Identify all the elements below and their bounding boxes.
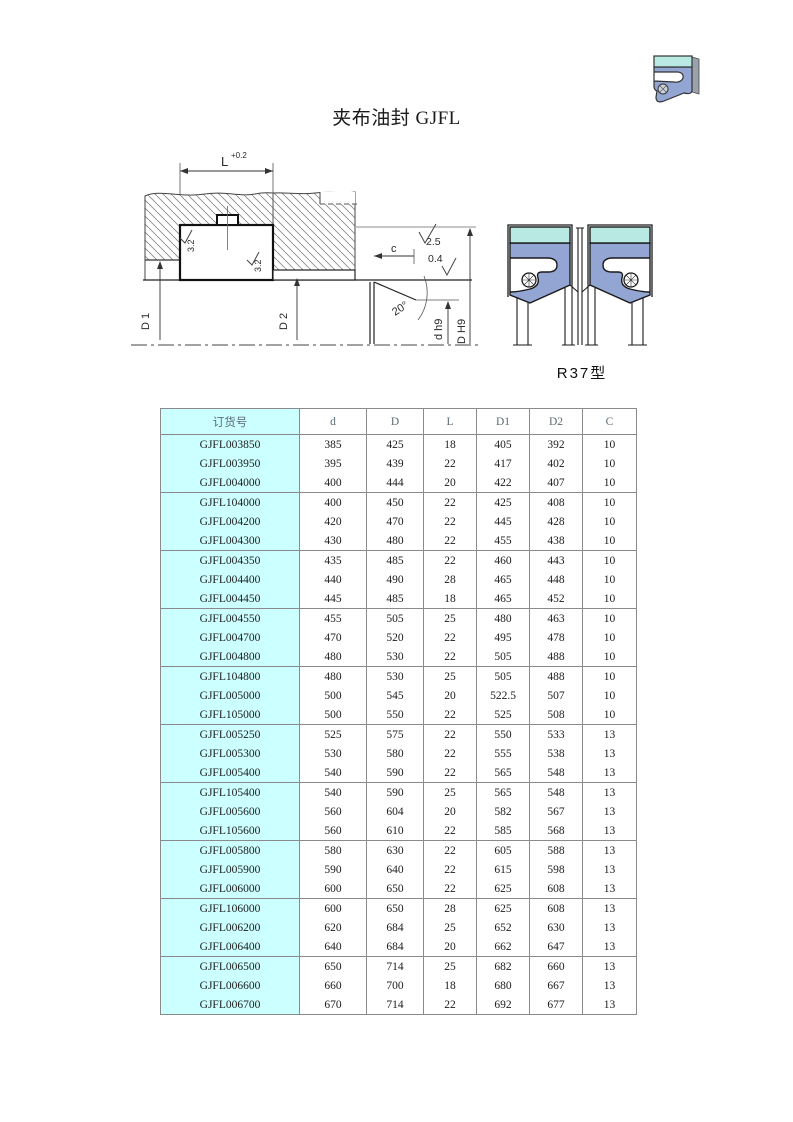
dimension-cell: 28 — [424, 899, 477, 919]
order-number-cell: GJFL004700 — [161, 628, 300, 647]
dimension-cell: 460 — [477, 551, 530, 571]
dimension-cell: 430 — [300, 531, 367, 551]
dimension-cell: 714 — [367, 957, 424, 977]
order-number-cell: GJFL004300 — [161, 531, 300, 551]
table-body: GJFL0038503854251840539210GJFL0039503954… — [161, 435, 637, 1015]
dimension-cell: 22 — [424, 705, 477, 725]
dimension-cell: 22 — [424, 763, 477, 783]
table-row: GJFL1054005405902556554813 — [161, 783, 637, 803]
table-row: GJFL0044504454851846545210 — [161, 589, 637, 609]
roughness-shaft: 0.4 — [428, 253, 443, 265]
order-number-cell: GJFL006500 — [161, 957, 300, 977]
dimension-cell: 438 — [530, 531, 583, 551]
table-row: GJFL0048004805302250548810 — [161, 647, 637, 667]
dimension-cell: 13 — [583, 744, 637, 763]
dimension-cell: 22 — [424, 551, 477, 571]
dimension-cell: 25 — [424, 609, 477, 629]
table-row: GJFL0047004705202249547810 — [161, 628, 637, 647]
dimension-cell: 530 — [367, 667, 424, 687]
table-header-row: 订货号dDLD1D2C — [161, 409, 637, 435]
dimension-cell: 682 — [477, 957, 530, 977]
dimension-cell: 18 — [424, 589, 477, 609]
dimension-cell: 488 — [530, 667, 583, 687]
dimension-cell: 10 — [583, 705, 637, 725]
table-row: GJFL0038503854251840539210 — [161, 435, 637, 455]
dimension-cell: 13 — [583, 879, 637, 899]
dimension-cell: 640 — [367, 860, 424, 879]
dimension-cell: 10 — [583, 686, 637, 705]
dimension-cell: 662 — [477, 937, 530, 957]
order-number-cell: GJFL005900 — [161, 860, 300, 879]
dimension-cell: 608 — [530, 879, 583, 899]
table-row: GJFL0044004404902846544810 — [161, 570, 637, 589]
dimension-cell: 590 — [300, 860, 367, 879]
dimension-cell: 590 — [367, 763, 424, 783]
order-number-cell: GJFL104000 — [161, 493, 300, 513]
dimension-cell: 455 — [300, 609, 367, 629]
table-row: GJFL1060006006502862560813 — [161, 899, 637, 919]
order-number-cell: GJFL006200 — [161, 918, 300, 937]
dimension-cell: 22 — [424, 454, 477, 473]
dimension-cell: 22 — [424, 647, 477, 667]
dimension-cell: 485 — [367, 551, 424, 571]
dimension-cell: 13 — [583, 763, 637, 783]
dimension-cell: 22 — [424, 531, 477, 551]
table-row: GJFL0060006006502262560813 — [161, 879, 637, 899]
dimension-cell: 560 — [300, 821, 367, 841]
dimension-cell: 650 — [300, 957, 367, 977]
dimension-cell: 440 — [300, 570, 367, 589]
order-number-cell: GJFL104800 — [161, 667, 300, 687]
dimension-cell: 10 — [583, 493, 637, 513]
roughness-bore: 2.5 — [426, 236, 441, 248]
column-header-c: C — [583, 409, 637, 435]
dimension-cell: 10 — [583, 570, 637, 589]
dimension-cell: 450 — [367, 493, 424, 513]
dim-L-tolerance: +0.2 — [231, 151, 247, 160]
dimension-cell: 660 — [530, 957, 583, 977]
dimension-cell: 505 — [367, 609, 424, 629]
dimension-cell: 10 — [583, 667, 637, 687]
dimension-cell: 22 — [424, 628, 477, 647]
dimension-cell: 20 — [424, 937, 477, 957]
dimension-cell: 495 — [477, 628, 530, 647]
order-number-cell: GJFL105400 — [161, 783, 300, 803]
table-row: GJFL0058005806302260558813 — [161, 841, 637, 861]
dimension-cell: 18 — [424, 435, 477, 455]
dimension-cell: 400 — [300, 493, 367, 513]
column-header-l: L — [424, 409, 477, 435]
order-number-cell: GJFL006000 — [161, 879, 300, 899]
dimension-cell: 588 — [530, 841, 583, 861]
dimension-cell: 610 — [367, 821, 424, 841]
dim-c-label: c — [391, 243, 397, 255]
dimension-cell: 660 — [300, 976, 367, 995]
dimension-cell: 20 — [424, 473, 477, 493]
dim-shaft-label: d h9 — [433, 319, 445, 340]
order-number-cell: GJFL105600 — [161, 821, 300, 841]
dimension-cell: 567 — [530, 802, 583, 821]
dimension-cell: 10 — [583, 435, 637, 455]
order-number-cell: GJFL003850 — [161, 435, 300, 455]
dimension-cell: 407 — [530, 473, 583, 493]
order-number-cell: GJFL004400 — [161, 570, 300, 589]
dimension-cell: 13 — [583, 841, 637, 861]
dimension-cell: 470 — [300, 628, 367, 647]
dimension-cell: 480 — [367, 531, 424, 551]
dimension-cell: 445 — [477, 512, 530, 531]
dimension-cell: 692 — [477, 995, 530, 1015]
dimension-cell: 540 — [300, 783, 367, 803]
dimension-cell: 500 — [300, 686, 367, 705]
dimension-cell: 22 — [424, 860, 477, 879]
dimension-cell: 565 — [477, 763, 530, 783]
table-row: GJFL0065006507142568266013 — [161, 957, 637, 977]
dimension-cell: 488 — [530, 647, 583, 667]
table-row: GJFL0052505255752255053313 — [161, 725, 637, 745]
dimension-cell: 533 — [530, 725, 583, 745]
table-row: GJFL0039503954392241740210 — [161, 454, 637, 473]
column-header-d2: D2 — [530, 409, 583, 435]
r37-profile-diagram: R37型 — [502, 212, 658, 384]
dimension-cell: 600 — [300, 899, 367, 919]
page-title: 夹布油封 GJFL — [0, 103, 793, 130]
dimension-cell: 10 — [583, 454, 637, 473]
dimension-cell: 508 — [530, 705, 583, 725]
dimension-cell: 13 — [583, 918, 637, 937]
order-number-cell: GJFL004350 — [161, 551, 300, 571]
dimension-cell: 25 — [424, 918, 477, 937]
dimension-cell: 480 — [477, 609, 530, 629]
dimension-cell: 522.5 — [477, 686, 530, 705]
dimension-cell: 439 — [367, 454, 424, 473]
order-number-cell: GJFL005800 — [161, 841, 300, 861]
dimension-cell: 550 — [477, 725, 530, 745]
dimension-cell: 605 — [477, 841, 530, 861]
dimension-cell: 480 — [300, 667, 367, 687]
dimension-cell: 18 — [424, 976, 477, 995]
dimension-cell: 22 — [424, 744, 477, 763]
order-number-cell: GJFL006700 — [161, 995, 300, 1015]
dimension-cell: 463 — [530, 609, 583, 629]
dimension-cell: 435 — [300, 551, 367, 571]
dimension-cell: 465 — [477, 589, 530, 609]
dimension-cell: 25 — [424, 667, 477, 687]
dimension-cell: 530 — [367, 647, 424, 667]
dim-bore-label: D H9 — [456, 319, 468, 344]
dimension-cell: 545 — [367, 686, 424, 705]
dimension-cell: 568 — [530, 821, 583, 841]
dimension-cell: 10 — [583, 589, 637, 609]
dimension-cell: 445 — [300, 589, 367, 609]
dimension-cell: 10 — [583, 473, 637, 493]
dimension-cell: 22 — [424, 841, 477, 861]
dimension-cell: 485 — [367, 589, 424, 609]
dimension-cell: 507 — [530, 686, 583, 705]
dimension-cell: 402 — [530, 454, 583, 473]
dimension-cell: 700 — [367, 976, 424, 995]
dimension-cell: 625 — [477, 899, 530, 919]
dimension-cell: 10 — [583, 628, 637, 647]
dimension-cell: 392 — [530, 435, 583, 455]
order-number-cell: GJFL005300 — [161, 744, 300, 763]
dimension-cell: 555 — [477, 744, 530, 763]
dimension-cell: 22 — [424, 879, 477, 899]
angle-label: 20° — [390, 299, 410, 318]
dimension-cell: 585 — [477, 821, 530, 841]
dimension-cell: 650 — [367, 879, 424, 899]
column-header-d: d — [300, 409, 367, 435]
order-number-cell: GJFL105000 — [161, 705, 300, 725]
dimension-cell: 580 — [367, 744, 424, 763]
dimension-cell: 652 — [477, 918, 530, 937]
dimension-cell: 20 — [424, 686, 477, 705]
dimension-cell: 470 — [367, 512, 424, 531]
dimension-cell: 505 — [477, 647, 530, 667]
dimension-cell: 540 — [300, 763, 367, 783]
order-number-cell: GJFL006400 — [161, 937, 300, 957]
order-number-cell: GJFL004200 — [161, 512, 300, 531]
dimension-cell: 25 — [424, 957, 477, 977]
dimension-cell: 22 — [424, 821, 477, 841]
dimension-cell: 448 — [530, 570, 583, 589]
column-header-order-no: 订货号 — [161, 409, 300, 435]
table-row: GJFL0043504354852246044310 — [161, 551, 637, 571]
dimension-cell: 580 — [300, 841, 367, 861]
dimension-cell: 620 — [300, 918, 367, 937]
dimension-cell: 575 — [367, 725, 424, 745]
dimension-cell: 670 — [300, 995, 367, 1015]
order-number-cell: GJFL004550 — [161, 609, 300, 629]
dimension-cell: 22 — [424, 725, 477, 745]
order-number-cell: GJFL005000 — [161, 686, 300, 705]
dimension-cell: 395 — [300, 454, 367, 473]
column-header-d: D — [367, 409, 424, 435]
dimension-cell: 525 — [477, 705, 530, 725]
order-number-cell: GJFL005250 — [161, 725, 300, 745]
dimension-cell: 520 — [367, 628, 424, 647]
dimension-cell: 22 — [424, 512, 477, 531]
order-number-cell: GJFL005400 — [161, 763, 300, 783]
dimension-cell: 525 — [300, 725, 367, 745]
roughness-seal-side: 3.2 — [253, 259, 263, 272]
dimension-cell: 677 — [530, 995, 583, 1015]
dimension-cell: 408 — [530, 493, 583, 513]
table-row: GJFL0066006607001868066713 — [161, 976, 637, 995]
dimension-cell: 565 — [477, 783, 530, 803]
dimension-cell: 13 — [583, 995, 637, 1015]
dimension-cell: 684 — [367, 937, 424, 957]
dimension-cell: 425 — [477, 493, 530, 513]
dimension-cell: 684 — [367, 918, 424, 937]
dimension-cell: 452 — [530, 589, 583, 609]
dimension-cell: 22 — [424, 995, 477, 1015]
dimension-cell: 714 — [367, 995, 424, 1015]
roughness-seal-top: 3.2 — [186, 239, 196, 252]
dimension-cell: 13 — [583, 976, 637, 995]
dimension-cell: 604 — [367, 802, 424, 821]
datasheet-page: 夹布油封 GJFL — [0, 0, 793, 1122]
dimension-cell: 582 — [477, 802, 530, 821]
table-row: GJFL0059005906402261559813 — [161, 860, 637, 879]
column-header-d1: D1 — [477, 409, 530, 435]
seal-cross-section-diagram: L +0.2 3.2 3.2 2.5 0.4 c 20° D 1 D 2 d h… — [125, 148, 490, 358]
dimension-cell: 13 — [583, 821, 637, 841]
order-number-cell: GJFL004000 — [161, 473, 300, 493]
table-row: GJFL0043004304802245543810 — [161, 531, 637, 551]
dimension-cell: 647 — [530, 937, 583, 957]
dimension-cell: 25 — [424, 783, 477, 803]
order-number-cell: GJFL106000 — [161, 899, 300, 919]
dimension-cell: 10 — [583, 551, 637, 571]
dimension-cell: 13 — [583, 783, 637, 803]
dimension-cell: 600 — [300, 879, 367, 899]
order-number-cell: GJFL006600 — [161, 976, 300, 995]
dimension-cell: 13 — [583, 937, 637, 957]
dimension-cell: 667 — [530, 976, 583, 995]
order-number-cell: GJFL003950 — [161, 454, 300, 473]
dimension-cell: 560 — [300, 802, 367, 821]
dim-L-label: L — [221, 154, 228, 169]
table-row: GJFL0042004204702244542810 — [161, 512, 637, 531]
dimension-cell: 10 — [583, 512, 637, 531]
dimension-cell: 13 — [583, 860, 637, 879]
table-row: GJFL1040004004502242540810 — [161, 493, 637, 513]
dimension-cell: 443 — [530, 551, 583, 571]
dimension-cell: 500 — [300, 705, 367, 725]
dimension-cell: 625 — [477, 879, 530, 899]
table-row: GJFL0062006206842565263013 — [161, 918, 637, 937]
table-row: GJFL0053005305802255553813 — [161, 744, 637, 763]
dimension-cell: 405 — [477, 435, 530, 455]
table-row: GJFL0040004004442042240710 — [161, 473, 637, 493]
dimension-cell: 425 — [367, 435, 424, 455]
dimension-cell: 28 — [424, 570, 477, 589]
dimension-cell: 10 — [583, 647, 637, 667]
size-table: 订货号dDLD1D2C GJFL0038503854251840539210GJ… — [160, 408, 637, 1015]
order-number-cell: GJFL004800 — [161, 647, 300, 667]
dimension-cell: 505 — [477, 667, 530, 687]
dimension-cell: 608 — [530, 899, 583, 919]
table-row: GJFL0045504555052548046310 — [161, 609, 637, 629]
dimension-cell: 550 — [367, 705, 424, 725]
dimension-cell: 13 — [583, 725, 637, 745]
dimension-cell: 680 — [477, 976, 530, 995]
dimension-cell: 590 — [367, 783, 424, 803]
dimension-cell: 422 — [477, 473, 530, 493]
dimension-cell: 20 — [424, 802, 477, 821]
dimension-cell: 480 — [300, 647, 367, 667]
order-number-cell: GJFL005600 — [161, 802, 300, 821]
dimension-cell: 10 — [583, 531, 637, 551]
dimension-cell: 385 — [300, 435, 367, 455]
profile-type-label: R37型 — [557, 365, 608, 382]
dimension-cell: 548 — [530, 783, 583, 803]
dimension-cell: 630 — [367, 841, 424, 861]
dimension-cell: 10 — [583, 609, 637, 629]
dimension-cell: 490 — [367, 570, 424, 589]
dimension-cell: 630 — [530, 918, 583, 937]
dimension-cell: 640 — [300, 937, 367, 957]
dimension-cell: 13 — [583, 957, 637, 977]
table-row: GJFL1048004805302550548810 — [161, 667, 637, 687]
dimension-cell: 13 — [583, 802, 637, 821]
dimension-cell: 548 — [530, 763, 583, 783]
dimension-cell: 22 — [424, 493, 477, 513]
dimension-cell: 420 — [300, 512, 367, 531]
dimension-cell: 465 — [477, 570, 530, 589]
dimension-cell: 615 — [477, 860, 530, 879]
dimension-cell: 444 — [367, 473, 424, 493]
dimension-cell: 530 — [300, 744, 367, 763]
dim-d2-label: D 2 — [278, 313, 290, 330]
dim-d1-label: D 1 — [140, 313, 152, 330]
dimension-cell: 400 — [300, 473, 367, 493]
table-row: GJFL0054005405902256554813 — [161, 763, 637, 783]
table-row: GJFL00500050054520522.550710 — [161, 686, 637, 705]
dimension-cell: 455 — [477, 531, 530, 551]
dimension-cell: 417 — [477, 454, 530, 473]
table-row: GJFL0064006406842066264713 — [161, 937, 637, 957]
dimension-cell: 478 — [530, 628, 583, 647]
table-row: GJFL1056005606102258556813 — [161, 821, 637, 841]
dimension-cell: 428 — [530, 512, 583, 531]
dimension-cell: 598 — [530, 860, 583, 879]
table-row: GJFL1050005005502252550810 — [161, 705, 637, 725]
dimension-cell: 538 — [530, 744, 583, 763]
order-number-cell: GJFL004450 — [161, 589, 300, 609]
table-row: GJFL0067006707142269267713 — [161, 995, 637, 1015]
seal-logo-icon — [648, 50, 706, 106]
dimension-cell: 13 — [583, 899, 637, 919]
dimension-cell: 650 — [367, 899, 424, 919]
table-row: GJFL0056005606042058256713 — [161, 802, 637, 821]
